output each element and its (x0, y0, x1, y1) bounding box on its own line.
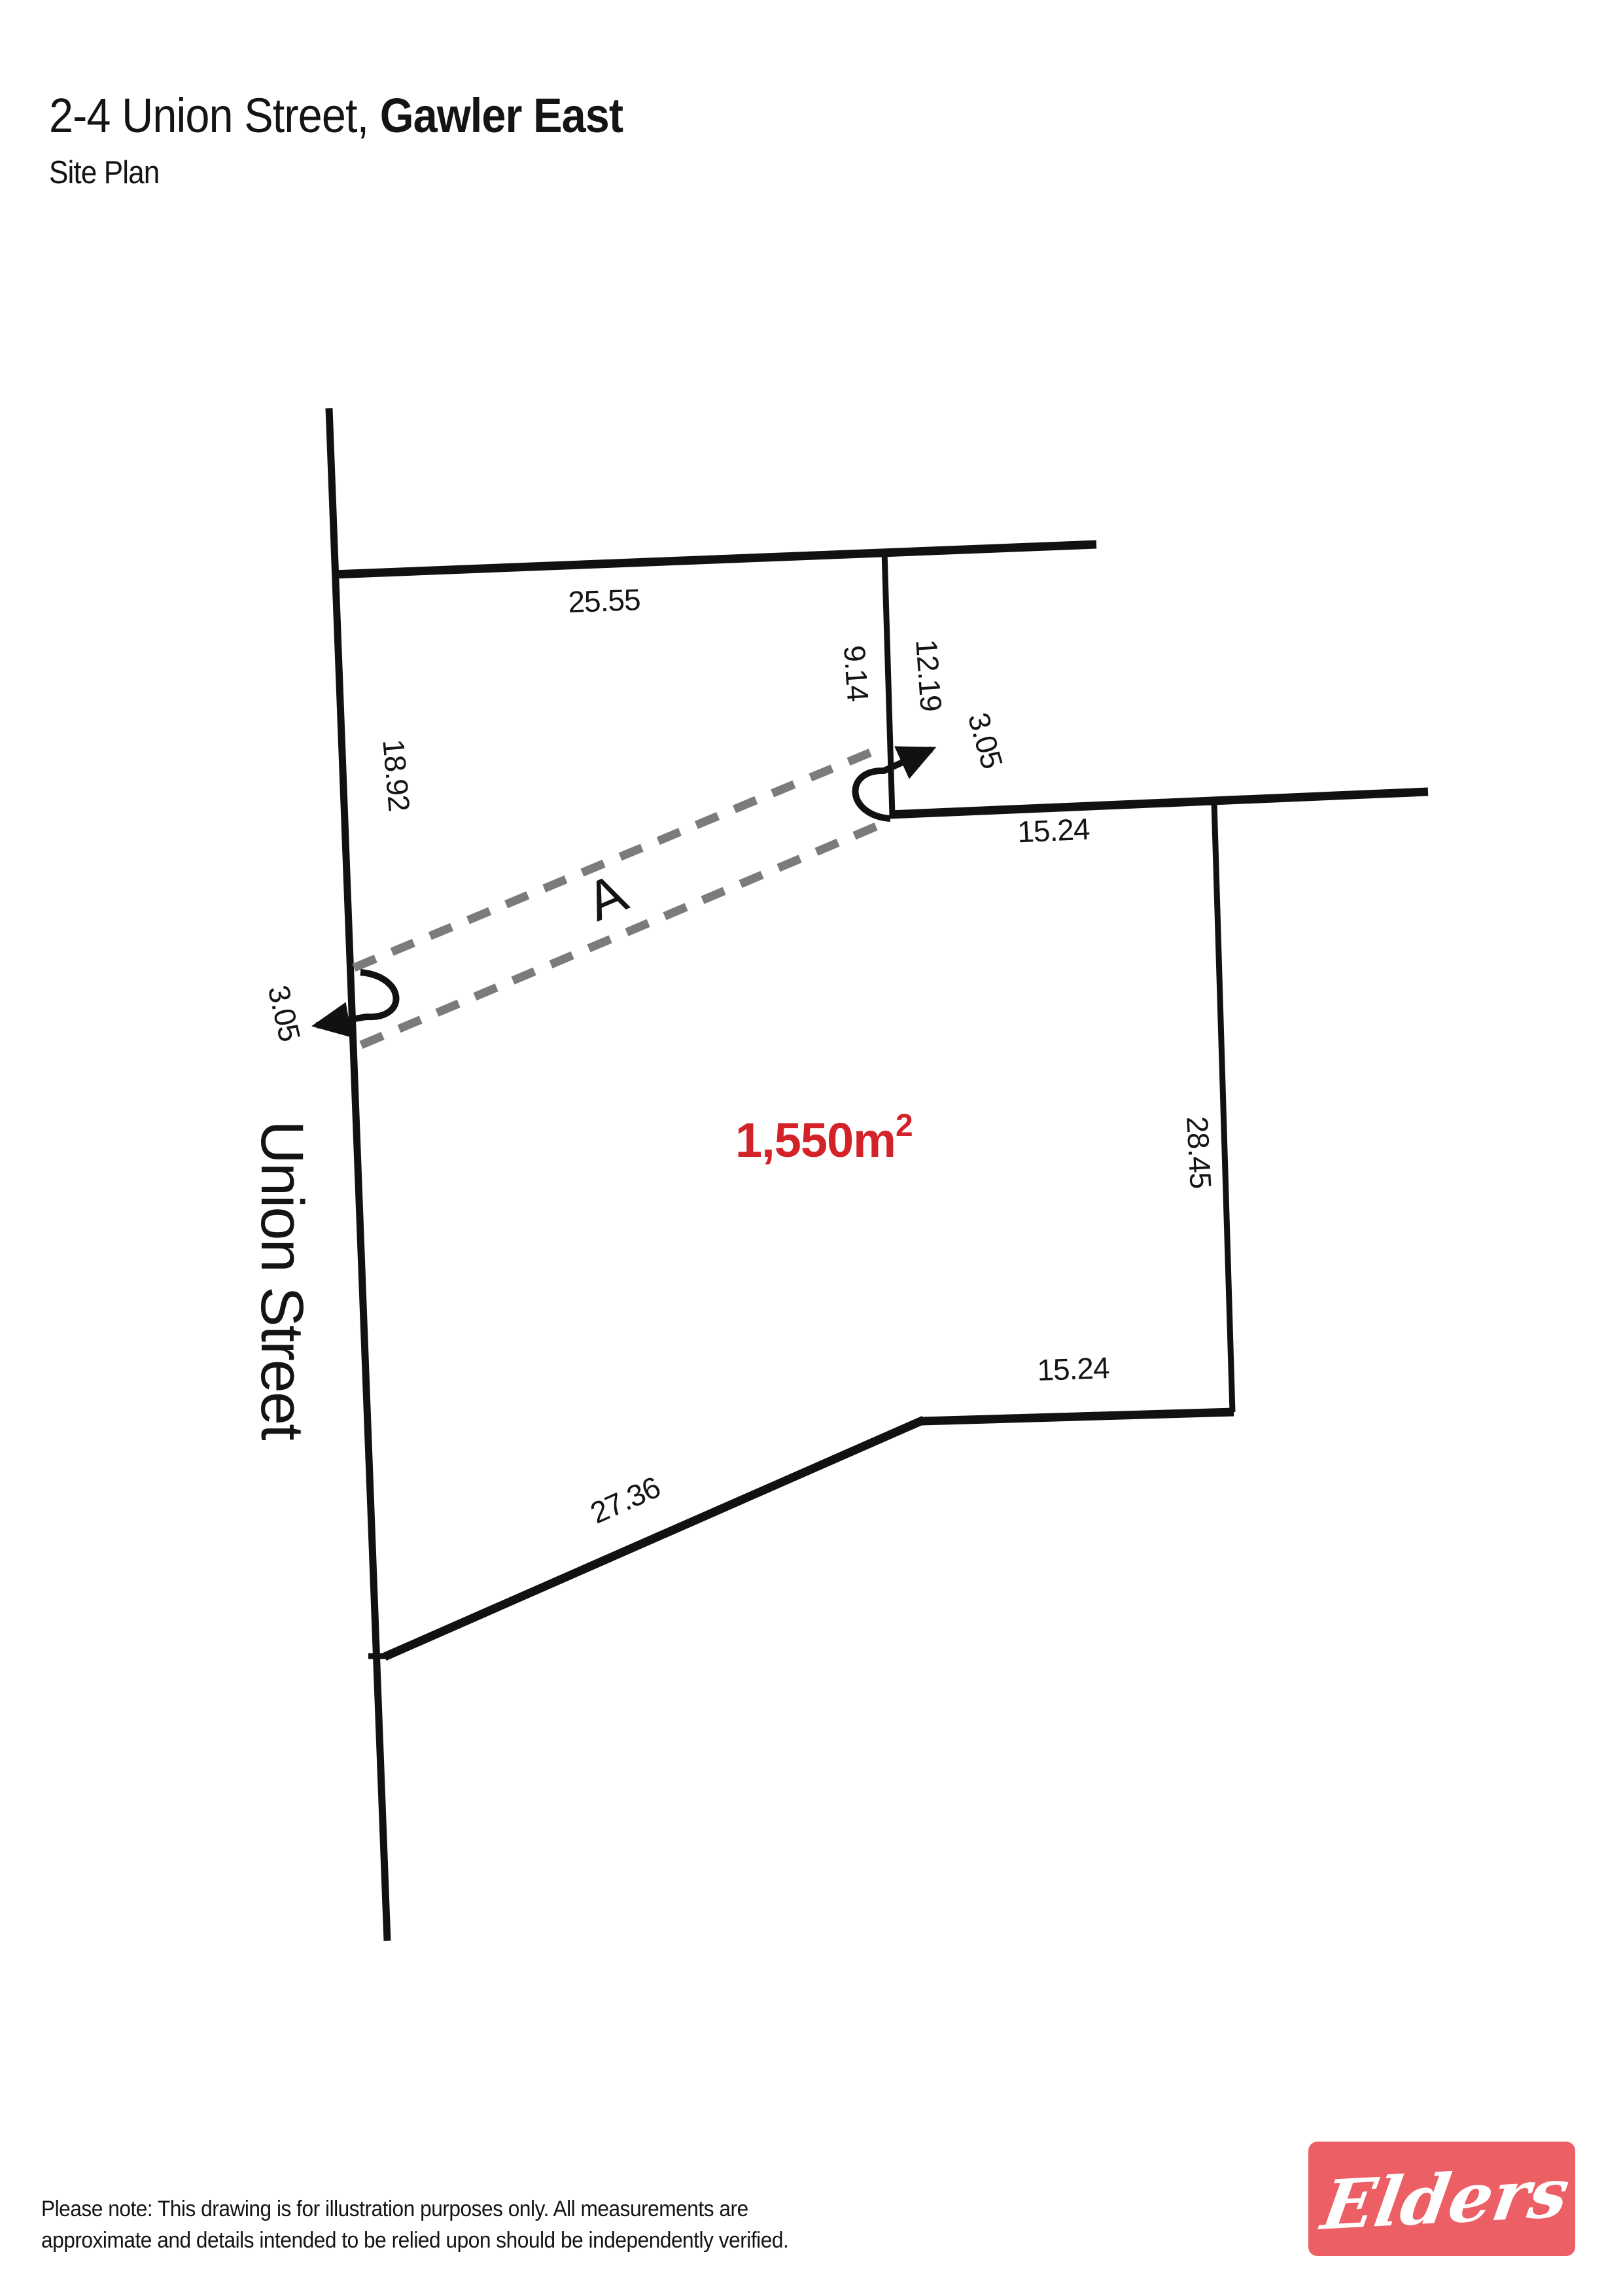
north-boundary-line (333, 544, 1096, 574)
dim-east-side: 28.45 (1180, 1116, 1218, 1190)
east-boundary-line (1214, 802, 1232, 1412)
elders-logo: Elders (1308, 2142, 1575, 2256)
footer-disclaimer-line2: approximate and details intended to be r… (41, 2225, 788, 2256)
street-boundary-line (329, 408, 387, 1941)
south-boundary-line (921, 1412, 1234, 1421)
elders-logo-mark: Elders (1308, 2142, 1575, 2256)
dim-southwest-diagonal: 27.36 (585, 1470, 665, 1530)
dim-south: 15.24 (1037, 1351, 1110, 1387)
dim-east-upper: 15.24 (1017, 812, 1091, 849)
elders-logo-text: Elders (1315, 2153, 1575, 2246)
dim-top-boundary: 25.55 (568, 582, 641, 619)
area-value: 1,550m (735, 1113, 896, 1167)
easement-letter: A (578, 862, 635, 932)
dim-easement-width-right: 3.05 (962, 709, 1010, 772)
area-label: 1,550m2 (735, 1108, 913, 1167)
easement-dash-upper (354, 747, 883, 968)
footer-disclaimer: Please note: This drawing is for illustr… (41, 2193, 788, 2256)
dim-left-upper: 18.92 (376, 737, 416, 812)
area-exponent: 2 (896, 1108, 913, 1143)
dim-partition-upper: 9.14 (837, 644, 875, 702)
footer-disclaimer-line1: Please note: This drawing is for illustr… (41, 2193, 788, 2225)
partition-line (884, 551, 892, 815)
site-plan-page: 2-4 Union Street, Gawler East Site Plan … (0, 0, 1623, 2296)
site-plan-drawing: 25.55 9.14 12.19 3.05 18.92 3.05 15.24 2… (0, 0, 1623, 2296)
dim-easement-width-left: 3.05 (262, 982, 307, 1044)
easement-arrow-left-icon (317, 972, 396, 1025)
street-name-label: Union Street (249, 1120, 315, 1440)
dim-partition-lower: 12.19 (909, 638, 949, 712)
southwest-boundary-line (385, 1420, 924, 1657)
east-upper-boundary-line (890, 792, 1428, 815)
